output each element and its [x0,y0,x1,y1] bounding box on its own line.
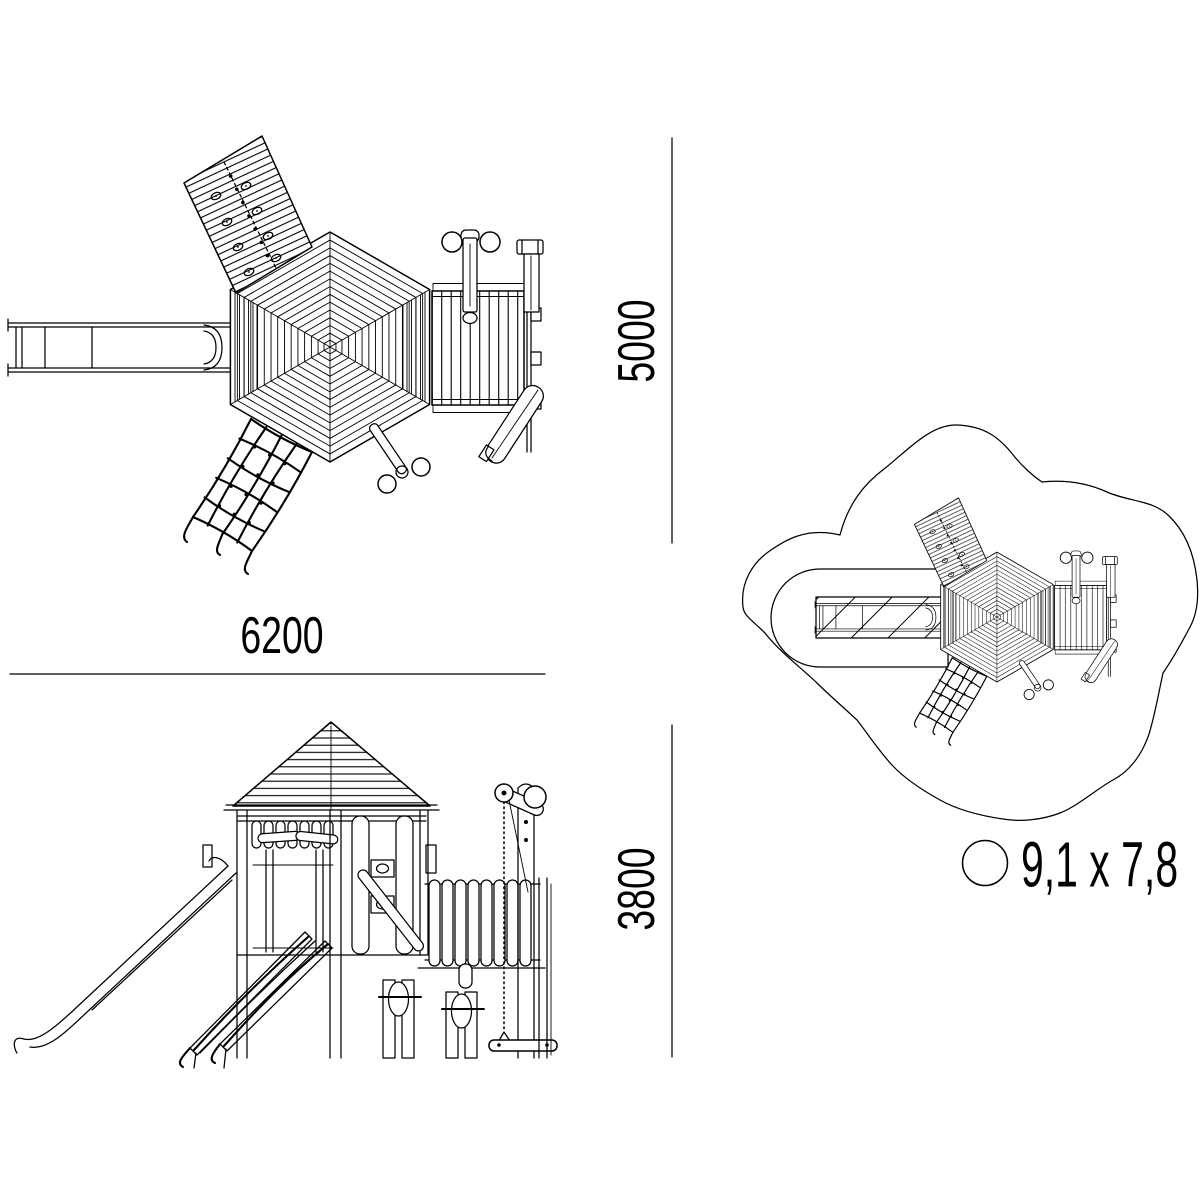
slide-top-view [8,319,232,376]
net-hook [184,517,193,542]
top-view [8,136,547,574]
play-pole-top-view [368,422,430,493]
net-hook [245,551,252,574]
support-posts-front [379,980,484,1058]
tower-body-front [203,810,436,1058]
dimension-depth-label: 5000 [607,299,666,382]
slide-front [14,858,236,1053]
dimension-depth: 5000 [607,138,672,543]
site-plan [743,425,1198,820]
net-hook [217,534,223,555]
dimension-width-label: 6200 [240,606,323,665]
footprint-size: 9,1 x 7,8 [963,829,1179,900]
tower-roof-front [224,722,439,810]
dimension-height: 3800 [607,725,672,1057]
climbing-net-top-view [184,419,312,574]
dimension-width: 6200 [10,606,545,674]
circle-icon [963,841,1008,886]
front-elevation [14,722,557,1068]
dimension-height-label: 3800 [607,847,666,930]
technical-drawing-sheet: 5000 6200 3800 [0,0,1200,1200]
playground-drawing: 5000 6200 3800 [0,0,1200,1200]
climbing-ladder-front [180,932,332,1068]
palisade-fence-front [418,880,545,988]
footprint-label: 9,1 x 7,8 [1021,829,1178,900]
